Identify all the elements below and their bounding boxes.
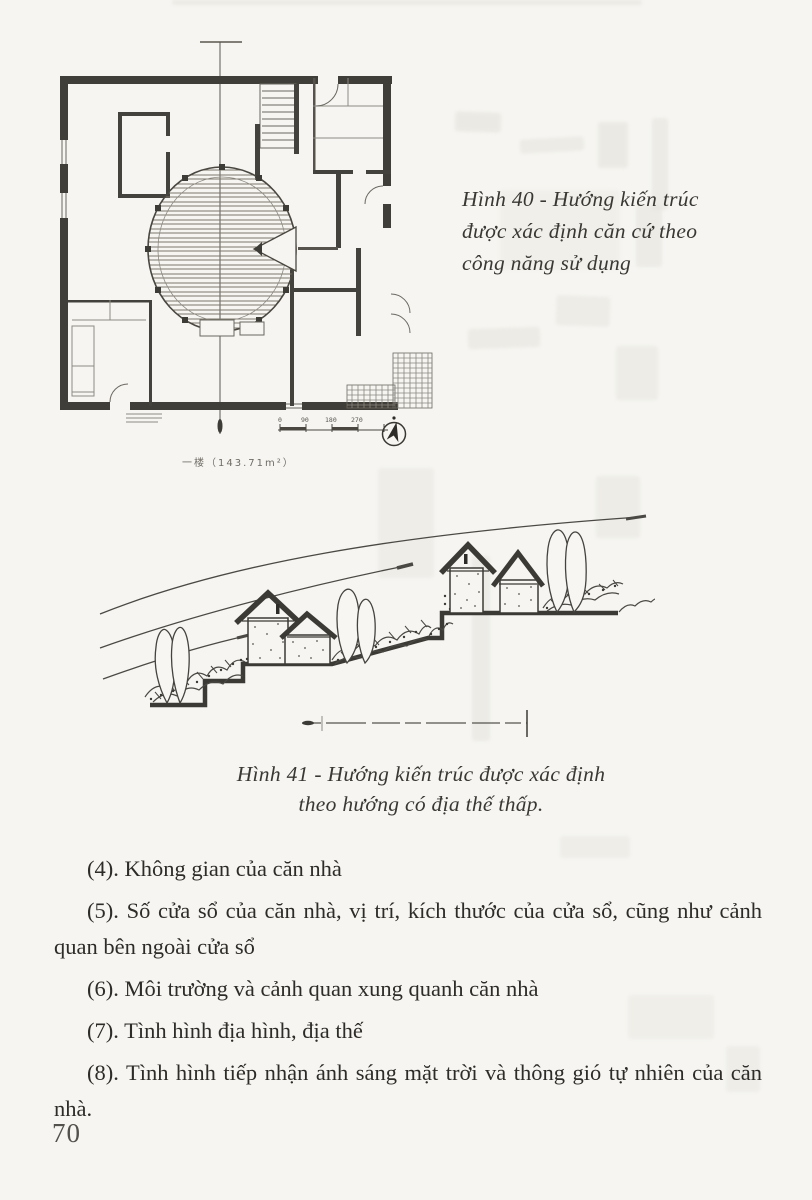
- list-item-text: Môi trường và cảnh quan xung quanh căn n…: [125, 976, 539, 1001]
- caption-line: Hình 40 - Hướng kiến trúc: [462, 183, 762, 215]
- ghost-mark: [555, 295, 610, 327]
- scale-tick-label: 0: [278, 416, 282, 424]
- plan-terrace-hatch: [347, 353, 432, 408]
- list-item-label: (8).: [87, 1060, 119, 1085]
- list-item-text: Số cửa sổ của căn nhà, vị trí, kích thướ…: [54, 898, 762, 959]
- ghost-mark: [172, 0, 642, 5]
- figure-41-hillside-sketch: [95, 492, 655, 742]
- list-item-label: (6).: [87, 976, 119, 1001]
- plan-scale-bar: 0 90 180 270: [278, 416, 388, 432]
- list-item: (4). Không gian của căn nhà: [54, 851, 762, 887]
- scale-tick-label: 180: [325, 416, 337, 424]
- terraced-ground: [150, 613, 618, 705]
- plan-floor-area-label: 一楼（143.71m²）: [182, 454, 295, 469]
- scale-tick-label: 90: [301, 416, 309, 424]
- caption-line: Hình 41 - Hướng kiến trúc được xác định: [146, 759, 696, 789]
- list-item-text: Tình hình tiếp nhận ánh sáng mặt trời và…: [54, 1060, 762, 1121]
- caption-line: được xác định căn cứ theo: [462, 215, 762, 247]
- list-item-label: (4).: [87, 856, 119, 881]
- figure-40-caption: Hình 40 - Hướng kiến trúc được xác định …: [462, 183, 762, 279]
- scanned-book-page: 0 90 180 270 一楼（143.71m²） Hình 40 - Hướn…: [0, 0, 812, 1200]
- plan-stairs: [255, 84, 299, 180]
- ghost-mark: [455, 111, 502, 133]
- north-arrow-icon: [383, 416, 406, 445]
- ghost-mark: [598, 122, 628, 168]
- house-cluster-upper: [441, 545, 543, 613]
- house-cluster-lower: [236, 593, 336, 664]
- ghost-mark: [468, 327, 541, 350]
- figure-41-caption: Hình 41 - Hướng kiến trúc được xác định …: [146, 759, 696, 819]
- scale-tick-label: 270: [351, 416, 363, 424]
- figure-40-floor-plan: 0 90 180 270: [50, 36, 442, 456]
- body-text: (4). Không gian của căn nhà (5). Số cửa …: [54, 851, 762, 1133]
- list-item-label: (7).: [87, 1018, 119, 1043]
- list-item: (7). Tình hình địa hình, địa thế: [54, 1013, 762, 1049]
- ghost-mark: [616, 346, 658, 400]
- plan-outer-walls: [60, 76, 398, 410]
- plan-room-upper-left: [118, 112, 170, 198]
- list-item-text: Không gian của căn nhà: [125, 856, 342, 881]
- caption-line: theo hướng có địa thế thấp.: [146, 789, 696, 819]
- plan-right-rooms: [290, 78, 391, 406]
- list-item: (8). Tình hình tiếp nhận ánh sáng mặt tr…: [54, 1055, 762, 1127]
- page-number: 70: [52, 1118, 81, 1149]
- list-item-text: Tình hình địa hình, địa thế: [124, 1018, 363, 1043]
- caption-line: công năng sử dụng: [462, 247, 762, 279]
- list-item-label: (5).: [87, 898, 119, 923]
- list-item: (6). Môi trường và cảnh quan xung quanh …: [54, 971, 762, 1007]
- dimension-line: [302, 710, 527, 737]
- list-item: (5). Số cửa sổ của căn nhà, vị trí, kích…: [54, 893, 762, 965]
- ghost-mark: [520, 136, 585, 153]
